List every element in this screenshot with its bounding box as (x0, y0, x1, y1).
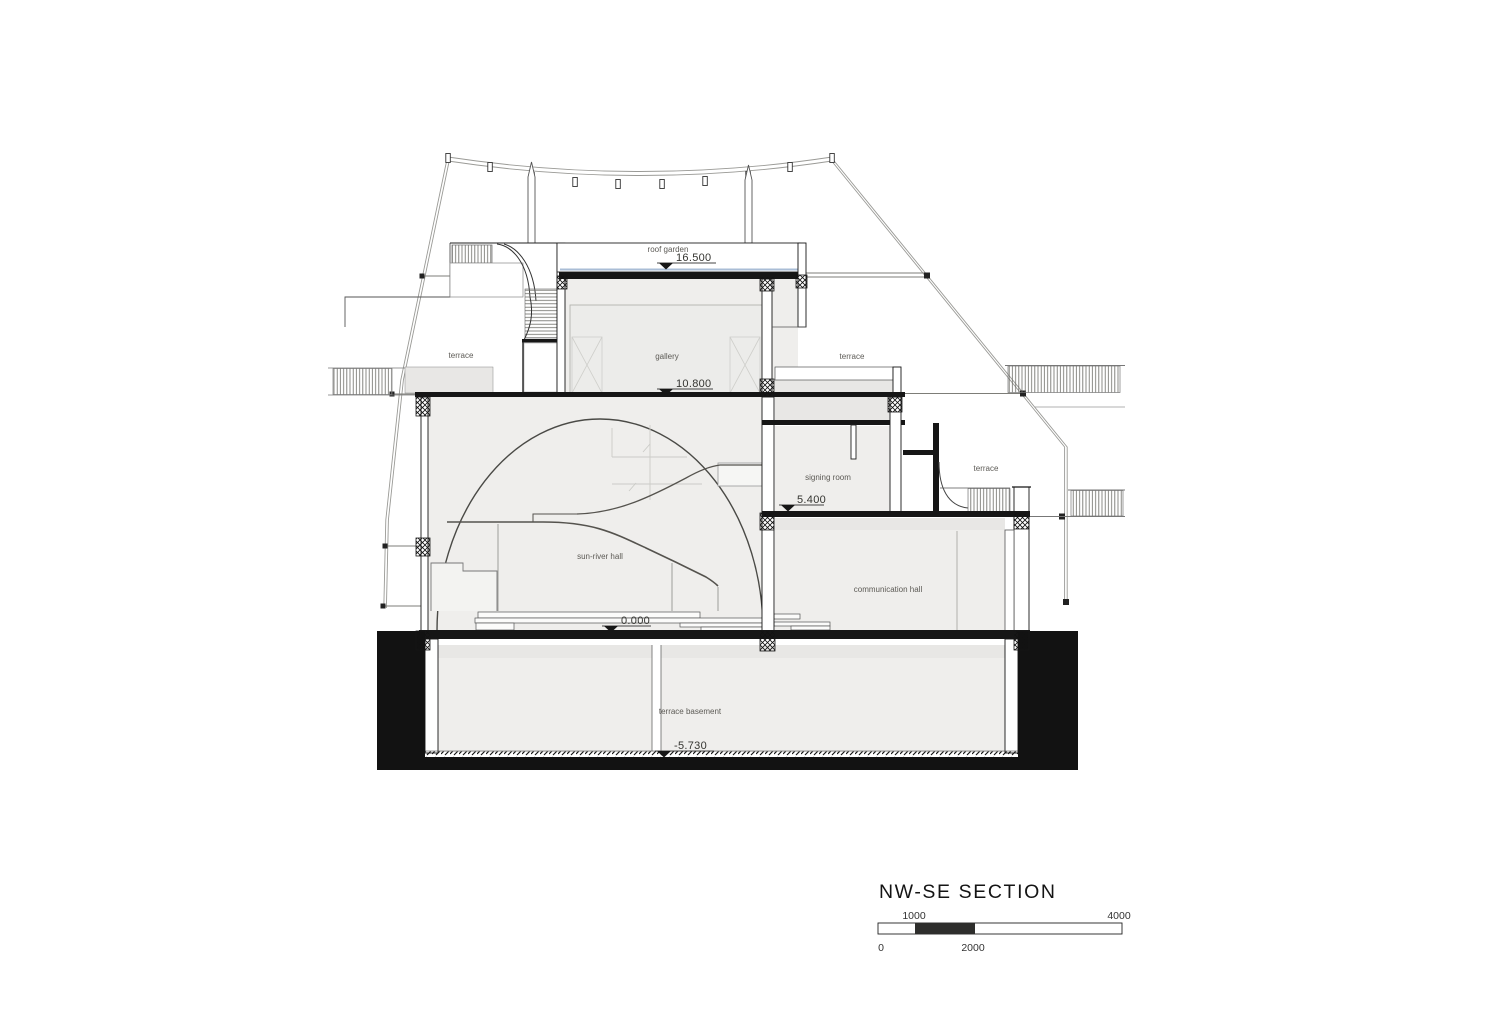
tower-stair-lower (525, 289, 557, 338)
level-gallery: 10.800 (676, 378, 711, 390)
title-block: NW-SE SECTION 1000 4000 0 2000 (878, 881, 1131, 954)
hanging-partition (851, 425, 856, 459)
level-signing: 5.400 (797, 494, 826, 506)
scale-label-2000: 2000 (961, 942, 985, 954)
terrace-stair (968, 489, 1010, 514)
basement-east-wall (1005, 639, 1018, 753)
level-basement: -5.730 (674, 740, 707, 752)
comm-hall-east-wall (1005, 530, 1014, 632)
ground-poche-right (1018, 631, 1078, 770)
label-signing-room: signing room (805, 473, 851, 482)
gallery-east-wall (762, 279, 772, 393)
gallery-inner-volume (570, 305, 762, 393)
section-drawing: 16.500 10.800 5.400 0.000 -5.730 roof ga… (0, 0, 1500, 1036)
stair-hatch-right-upper (1008, 366, 1120, 393)
label-gallery: gallery (655, 352, 679, 361)
masts (528, 162, 752, 243)
drawing-title: NW-SE SECTION (879, 881, 1057, 903)
bridge (718, 463, 762, 486)
stair-hatch-left (333, 369, 392, 395)
terrace-beam (903, 450, 939, 455)
scale-bar (878, 923, 1122, 934)
scale-bar-segment (915, 923, 975, 934)
hall-west-wall (421, 397, 428, 631)
ground-poche-left (377, 631, 425, 770)
label-terrace-upper-right: terrace (840, 352, 865, 361)
scale-label-0: 0 (878, 942, 884, 954)
terrace-post (933, 423, 939, 512)
cable-clamps (446, 154, 835, 189)
signing-east-wall (890, 397, 901, 512)
architectural-section-sheet: 16.500 10.800 5.400 0.000 -5.730 roof ga… (0, 0, 1500, 1036)
tower-stair-upper (452, 245, 492, 263)
label-terrace-basement: terrace basement (659, 707, 722, 716)
floor-0000 (419, 630, 1030, 639)
upper-terrace-slab (775, 367, 893, 380)
label-terrace-left: terrace (449, 351, 474, 360)
left-terrace-slab (405, 367, 493, 393)
terrace-curve (939, 462, 968, 508)
label-communication-hall: communication hall (854, 585, 923, 594)
label-roof-garden: roof garden (648, 245, 689, 254)
ground-poche-bottom (377, 757, 1078, 770)
scale-label-4000: 4000 (1107, 910, 1131, 922)
stair-hatch-right-mid (1071, 491, 1123, 517)
signing-ceiling-slab (762, 420, 905, 425)
label-sun-river-hall: sun-river hall (577, 552, 623, 561)
basement-west-wall (425, 639, 438, 753)
scale-label-1000: 1000 (902, 910, 926, 922)
level-ground: 0.000 (621, 615, 650, 627)
label-terrace-mid-right: terrace (974, 464, 999, 473)
floor-10800 (415, 392, 905, 397)
floor-5400 (762, 511, 1030, 517)
east-column (1014, 487, 1029, 632)
